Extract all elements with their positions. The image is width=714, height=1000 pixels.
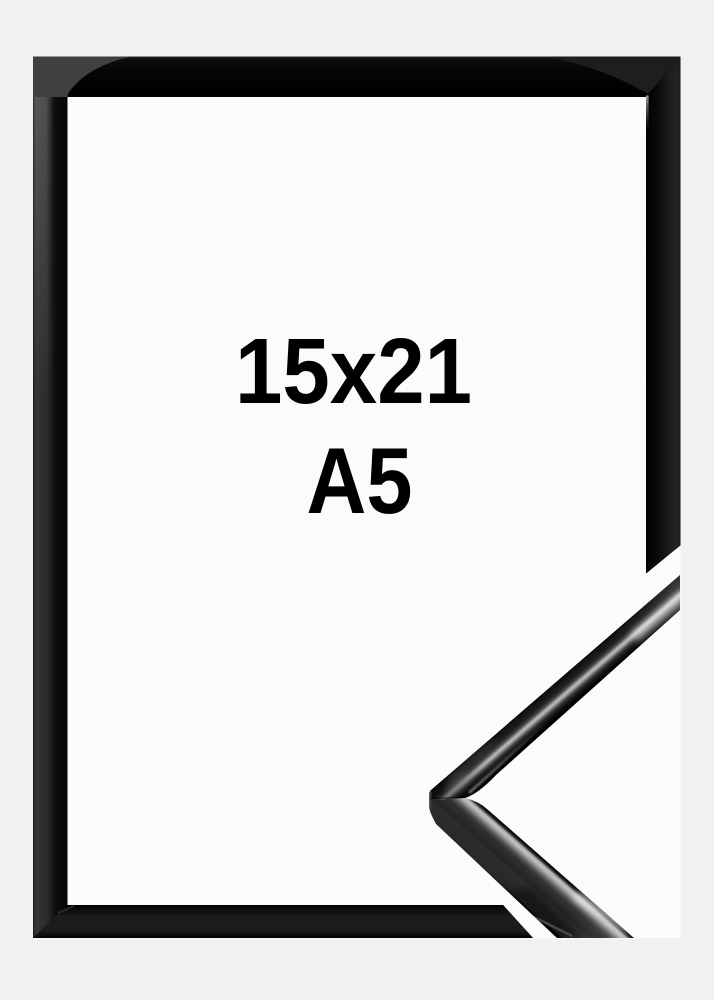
svg-text:15x21: 15x21 — [235, 319, 472, 423]
svg-text:A5: A5 — [307, 428, 413, 533]
